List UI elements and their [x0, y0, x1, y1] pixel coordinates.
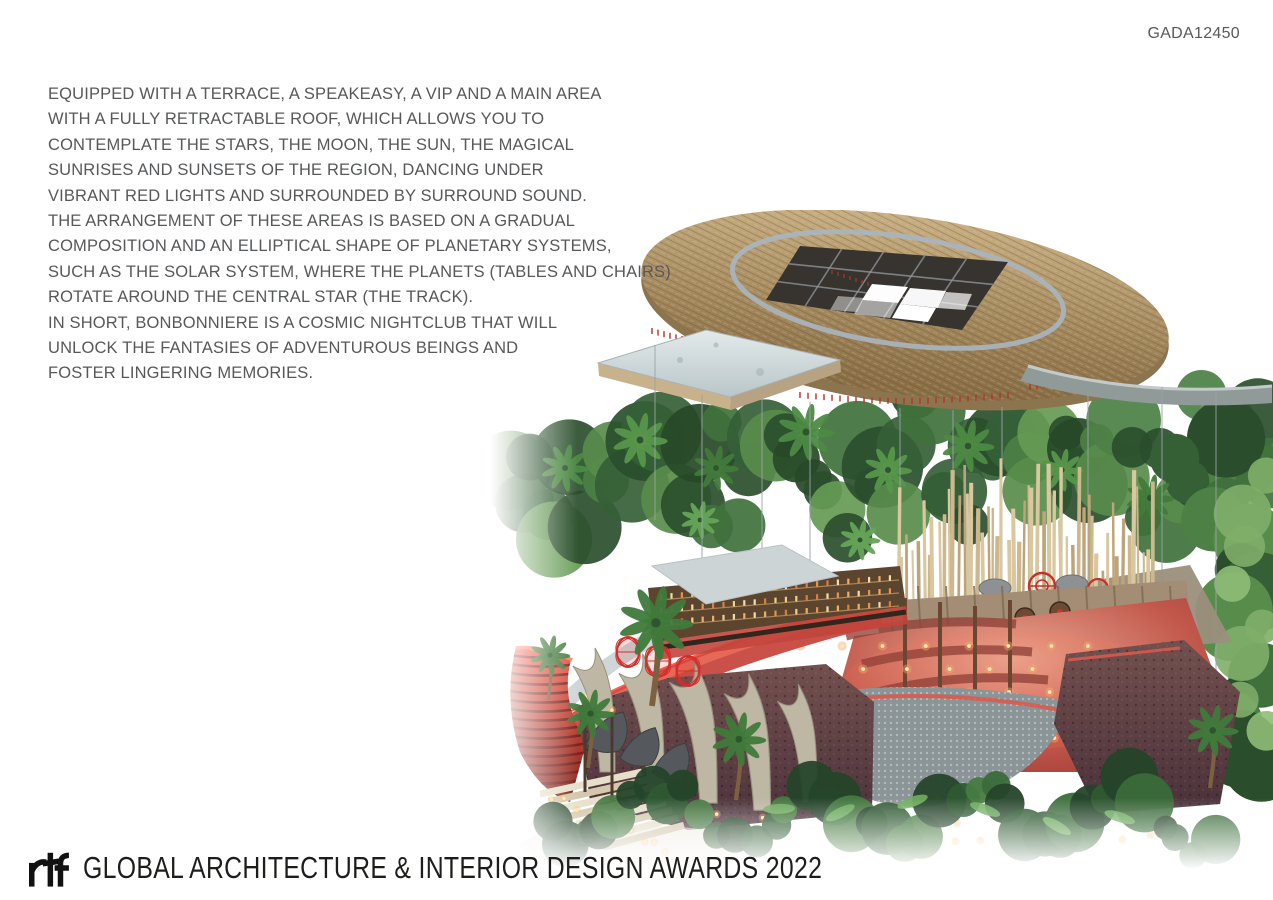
- description-line: EQUIPPED WITH A TERRACE, A SPEAKEASY, A …: [48, 82, 671, 107]
- description-line: ROTATE AROUND THE CENTRAL STAR (THE TRAC…: [48, 285, 671, 310]
- description-line: IN SHORT, BONBONNIERE IS A COSMIC NIGHTC…: [48, 311, 671, 336]
- project-description: EQUIPPED WITH A TERRACE, A SPEAKEASY, A …: [48, 82, 671, 387]
- rtf-logo-icon: [25, 847, 74, 889]
- description-line: FOSTER LINGERING MEMORIES.: [48, 361, 671, 386]
- submission-code: GADA12450: [1147, 25, 1240, 43]
- description-line: SUNRISES AND SUNSETS OF THE REGION, DANC…: [48, 158, 671, 183]
- awards-title: GLOBAL ARCHITECTURE & INTERIOR DESIGN AW…: [83, 850, 822, 886]
- description-line: WITH A FULLY RETRACTABLE ROOF, WHICH ALL…: [48, 107, 671, 132]
- description-line: COMPOSITION AND AN ELLIPTICAL SHAPE OF P…: [48, 234, 671, 259]
- description-line: CONTEMPLATE THE STARS, THE MOON, THE SUN…: [48, 133, 671, 158]
- description-line: UNLOCK THE FANTASIES OF ADVENTUROUS BEIN…: [48, 336, 671, 361]
- description-line: THE ARRANGEMENT OF THESE AREAS IS BASED …: [48, 209, 671, 234]
- footer: GLOBAL ARCHITECTURE & INTERIOR DESIGN AW…: [25, 847, 1007, 889]
- description-line: SUCH AS THE SOLAR SYSTEM, WHERE THE PLAN…: [48, 260, 671, 285]
- description-line: VIBRANT RED LIGHTS AND SURROUNDED BY SUR…: [48, 184, 671, 209]
